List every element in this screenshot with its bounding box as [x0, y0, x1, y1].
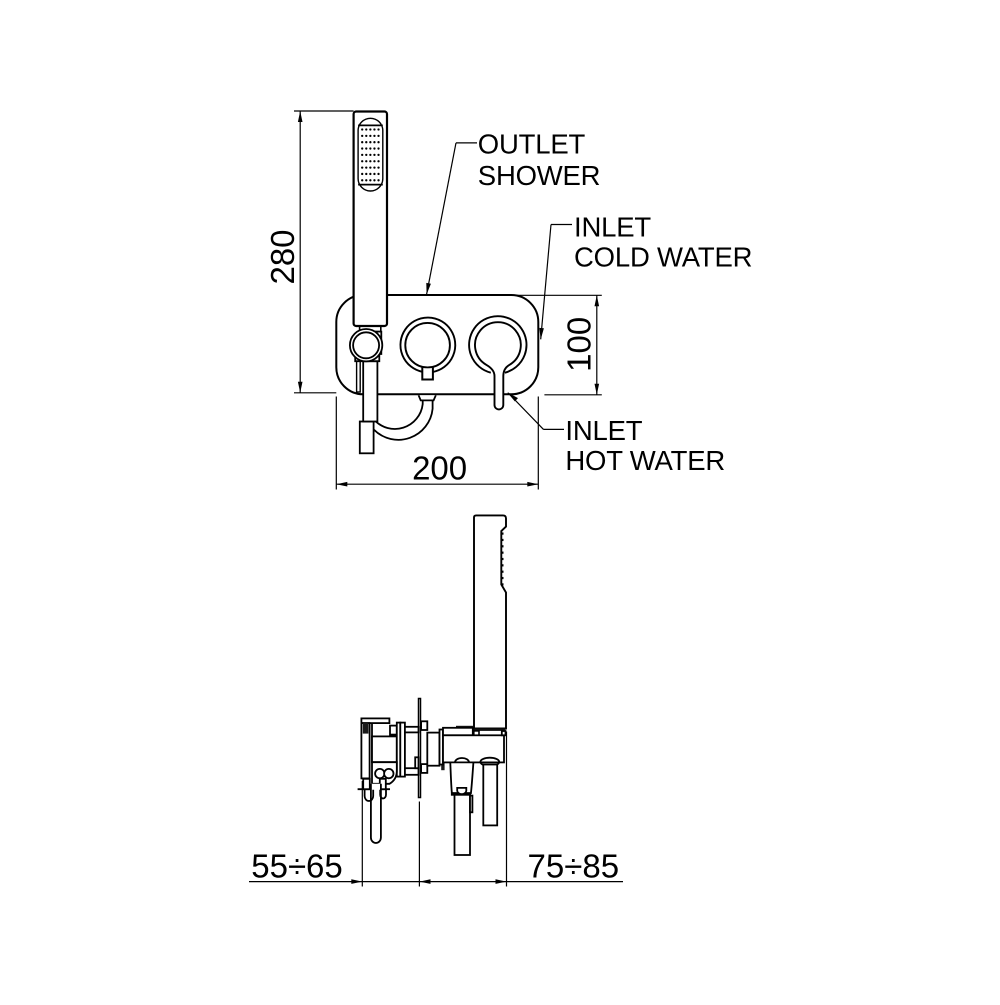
svg-text:SHOWER: SHOWER — [478, 160, 601, 191]
svg-text:200: 200 — [412, 449, 467, 486]
svg-text:55÷65: 55÷65 — [251, 847, 343, 884]
svg-text:INLET: INLET — [574, 211, 651, 242]
svg-text:280: 280 — [264, 229, 301, 284]
svg-text:INLET: INLET — [565, 415, 642, 446]
svg-text:COLD WATER: COLD WATER — [574, 242, 752, 273]
svg-text:75÷85: 75÷85 — [528, 847, 620, 884]
svg-text:100: 100 — [561, 317, 598, 372]
svg-text:HOT WATER: HOT WATER — [565, 445, 725, 476]
svg-text:OUTLET: OUTLET — [478, 129, 586, 160]
